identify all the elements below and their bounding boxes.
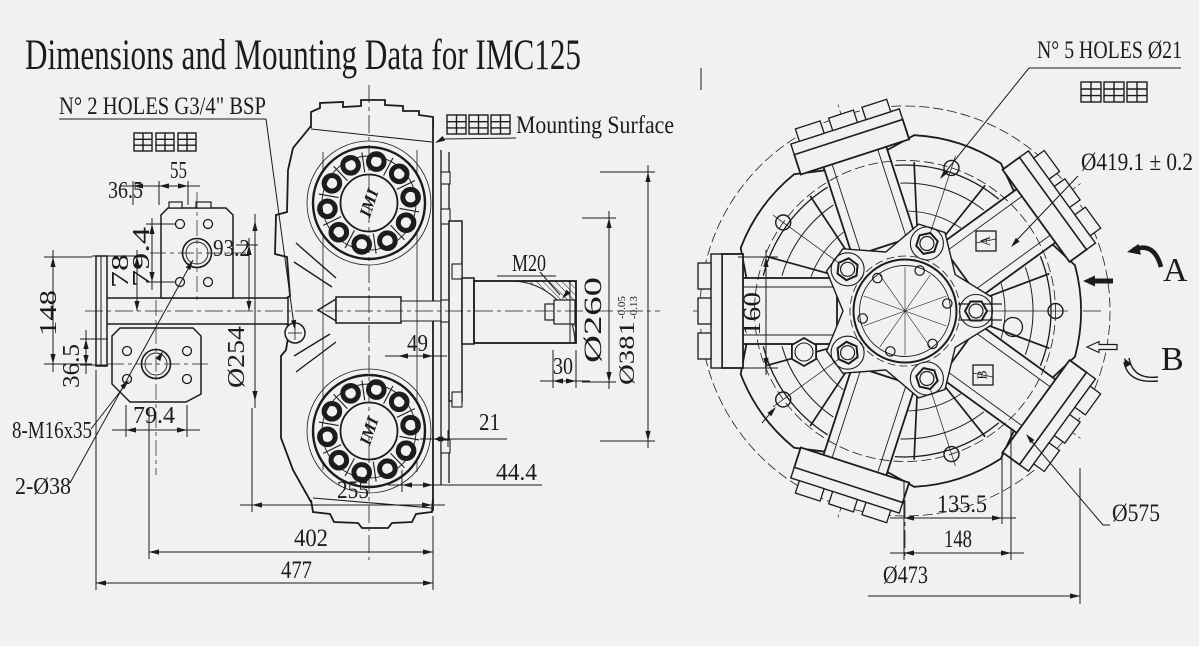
- svg-text:2-Ø38: 2-Ø38: [15, 474, 71, 500]
- svg-text:49: 49: [407, 331, 428, 357]
- svg-text:78: 78: [108, 254, 134, 288]
- svg-text:B: B: [976, 370, 991, 379]
- svg-text:148: 148: [944, 526, 972, 553]
- svg-text:21: 21: [479, 410, 500, 436]
- svg-text:55: 55: [170, 158, 187, 184]
- svg-text:160: 160: [739, 292, 766, 336]
- svg-text:36.5: 36.5: [108, 178, 143, 204]
- svg-text:A: A: [979, 235, 994, 246]
- svg-text:B: B: [1161, 341, 1184, 378]
- svg-text:Ø473: Ø473: [883, 562, 928, 589]
- svg-text:135.5: 135.5: [937, 491, 987, 518]
- svg-text:-0.13: -0.13: [628, 296, 640, 319]
- svg-text:Mounting Surface: Mounting Surface: [516, 112, 674, 139]
- svg-text:30: 30: [553, 354, 573, 380]
- svg-text:Ø260: Ø260: [580, 277, 607, 363]
- svg-text:Dimensions and Mounting Data f: Dimensions and Mounting Data for IMC125: [25, 32, 581, 79]
- svg-text:8-M16x35: 8-M16x35: [12, 418, 92, 444]
- svg-text:44.4: 44.4: [496, 460, 537, 486]
- svg-text:Ø254: Ø254: [224, 326, 250, 388]
- svg-text:402: 402: [294, 525, 328, 552]
- svg-text:Ø575: Ø575: [1112, 500, 1160, 527]
- svg-text:A: A: [1163, 252, 1188, 289]
- svg-text:Ø381: Ø381: [614, 321, 639, 385]
- svg-text:79.4: 79.4: [133, 403, 175, 429]
- svg-text:36.5: 36.5: [59, 344, 85, 388]
- svg-text:255: 255: [337, 477, 369, 504]
- svg-text:477: 477: [281, 557, 312, 584]
- svg-text:Ø419.1 ± 0.2: Ø419.1 ± 0.2: [1081, 149, 1193, 176]
- svg-text:93.2: 93.2: [213, 236, 250, 262]
- svg-text:148: 148: [36, 290, 62, 336]
- svg-text:-0.05: -0.05: [616, 296, 628, 319]
- svg-text:N° 5 HOLES Ø21: N° 5 HOLES Ø21: [1037, 37, 1182, 64]
- svg-text:N° 2 HOLES G3/4" BSP: N° 2 HOLES G3/4" BSP: [59, 93, 266, 120]
